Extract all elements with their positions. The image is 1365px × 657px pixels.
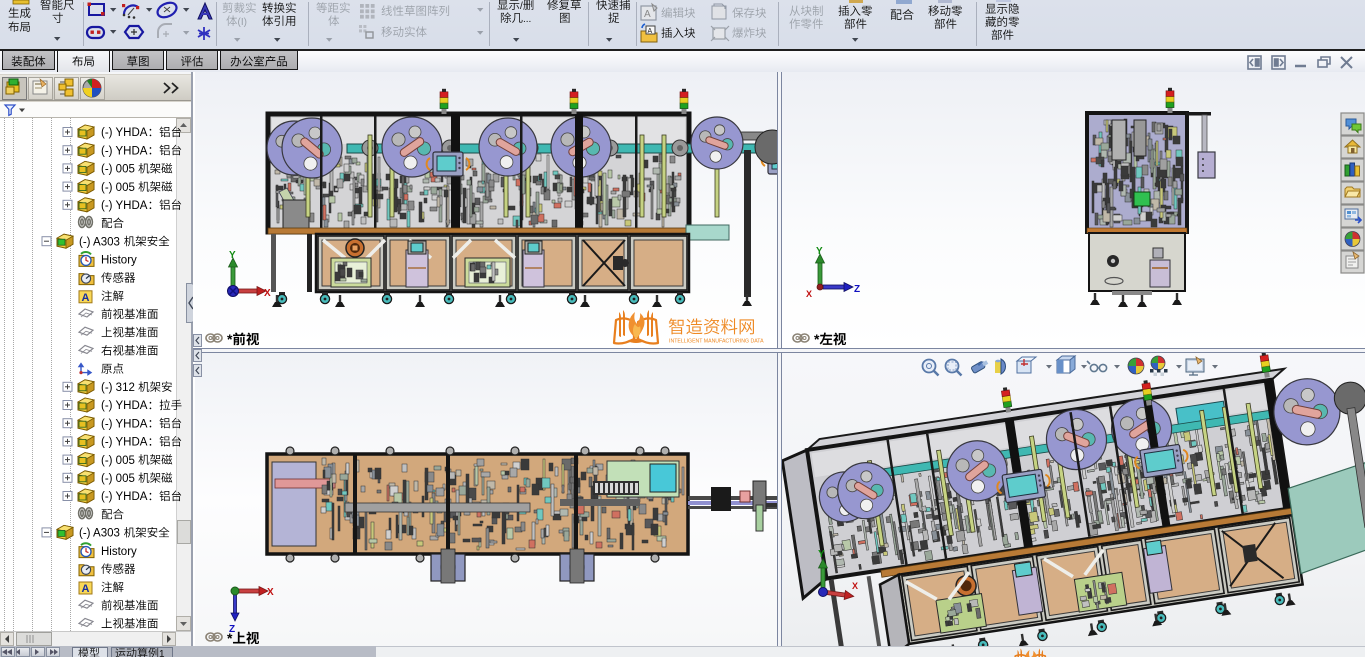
svg-text:A: A	[82, 583, 90, 595]
svg-text:A: A	[82, 292, 90, 304]
